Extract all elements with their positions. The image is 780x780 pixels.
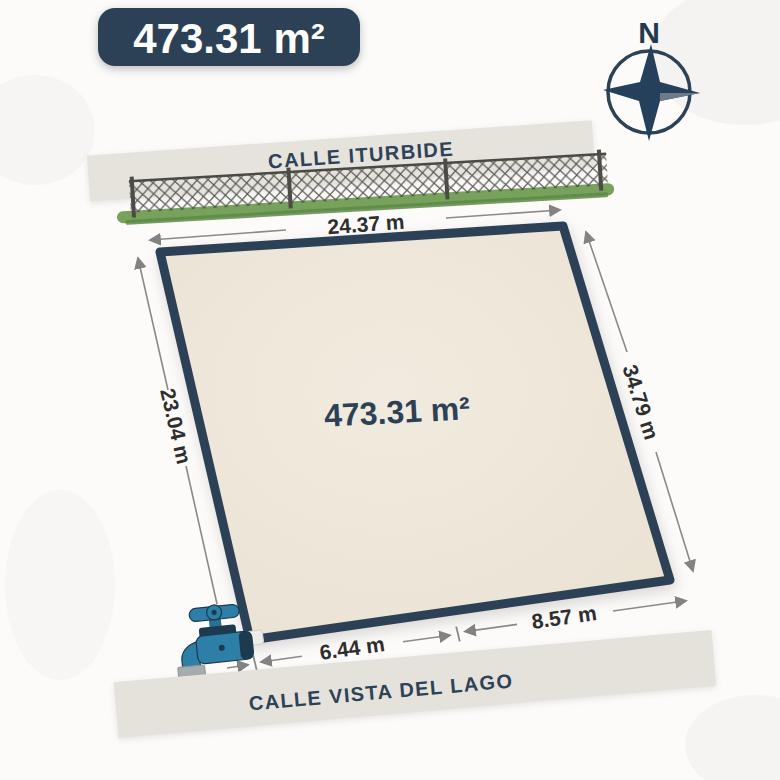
- dimension-bottom-right-label: 8.57 m: [530, 601, 598, 633]
- plot-area-label: 473.31 m²: [323, 390, 471, 434]
- plot-boundary: [160, 226, 670, 640]
- area-badge-label: 473.31 m²: [133, 15, 324, 62]
- plot-survey-diagram: CALLE ITURBIDE 473.31 m² 24.37 m 23.04 m…: [0, 0, 780, 780]
- dimension-bottom-left-label: 6.44 m: [318, 632, 386, 664]
- compass-north-label: N: [638, 16, 660, 49]
- plot: [160, 226, 670, 640]
- diagram-svg: CALLE ITURBIDE 473.31 m² 24.37 m 23.04 m…: [0, 0, 780, 780]
